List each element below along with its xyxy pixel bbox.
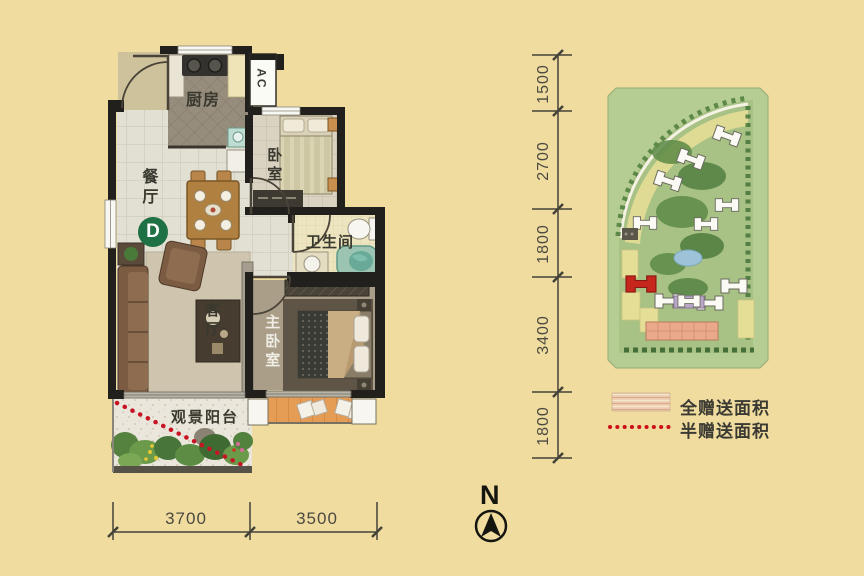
ac-shaft-label: AC xyxy=(254,68,268,89)
legend-label-half-gift: 半赠送面积 xyxy=(680,417,770,442)
dim-right-3400: 3400 xyxy=(535,305,553,365)
room-label-balcony: 观景阳台 xyxy=(171,409,239,426)
room-label-bathroom: 卫生间 xyxy=(306,234,354,251)
floor-plan xyxy=(105,46,385,473)
living-room-furniture xyxy=(118,240,253,398)
dim-bottom-3500: 3500 xyxy=(291,509,343,529)
room-label-living: 客厅 xyxy=(203,302,220,340)
dim-bottom-3700: 3700 xyxy=(160,509,212,529)
room-label-dining: 餐厅 xyxy=(138,168,156,208)
room-label-kitchen: 厨房 xyxy=(186,92,220,110)
compass xyxy=(476,511,506,541)
room-label-master-bedroom: 主卧室 xyxy=(263,314,280,371)
dining-table xyxy=(187,171,239,250)
site-plan xyxy=(608,88,768,368)
site-pond xyxy=(674,250,702,266)
dim-right-1800a: 1800 xyxy=(535,214,553,274)
site-small-structures xyxy=(622,228,638,240)
compass-north-label: N xyxy=(480,480,500,511)
floorplan-page: 厨房 餐厅 卧室 卫生间 客厅 主卧室 观景阳台 AC D 3700 3500 … xyxy=(0,0,864,576)
north-arrow xyxy=(481,513,501,537)
dim-right-2700: 2700 xyxy=(535,131,553,191)
legend-label-full-gift: 全赠送面积 xyxy=(680,394,770,419)
legend-wood-swatch xyxy=(612,393,670,411)
room-label-bedroom: 卧室 xyxy=(265,147,282,185)
dim-right-1500: 1500 xyxy=(535,54,553,114)
site-commercial-strip xyxy=(646,322,718,340)
unit-badge: D xyxy=(138,217,168,247)
dim-right-1800b: 1800 xyxy=(535,396,553,456)
scene-graphics xyxy=(0,0,864,576)
legend-graphics xyxy=(610,393,673,427)
